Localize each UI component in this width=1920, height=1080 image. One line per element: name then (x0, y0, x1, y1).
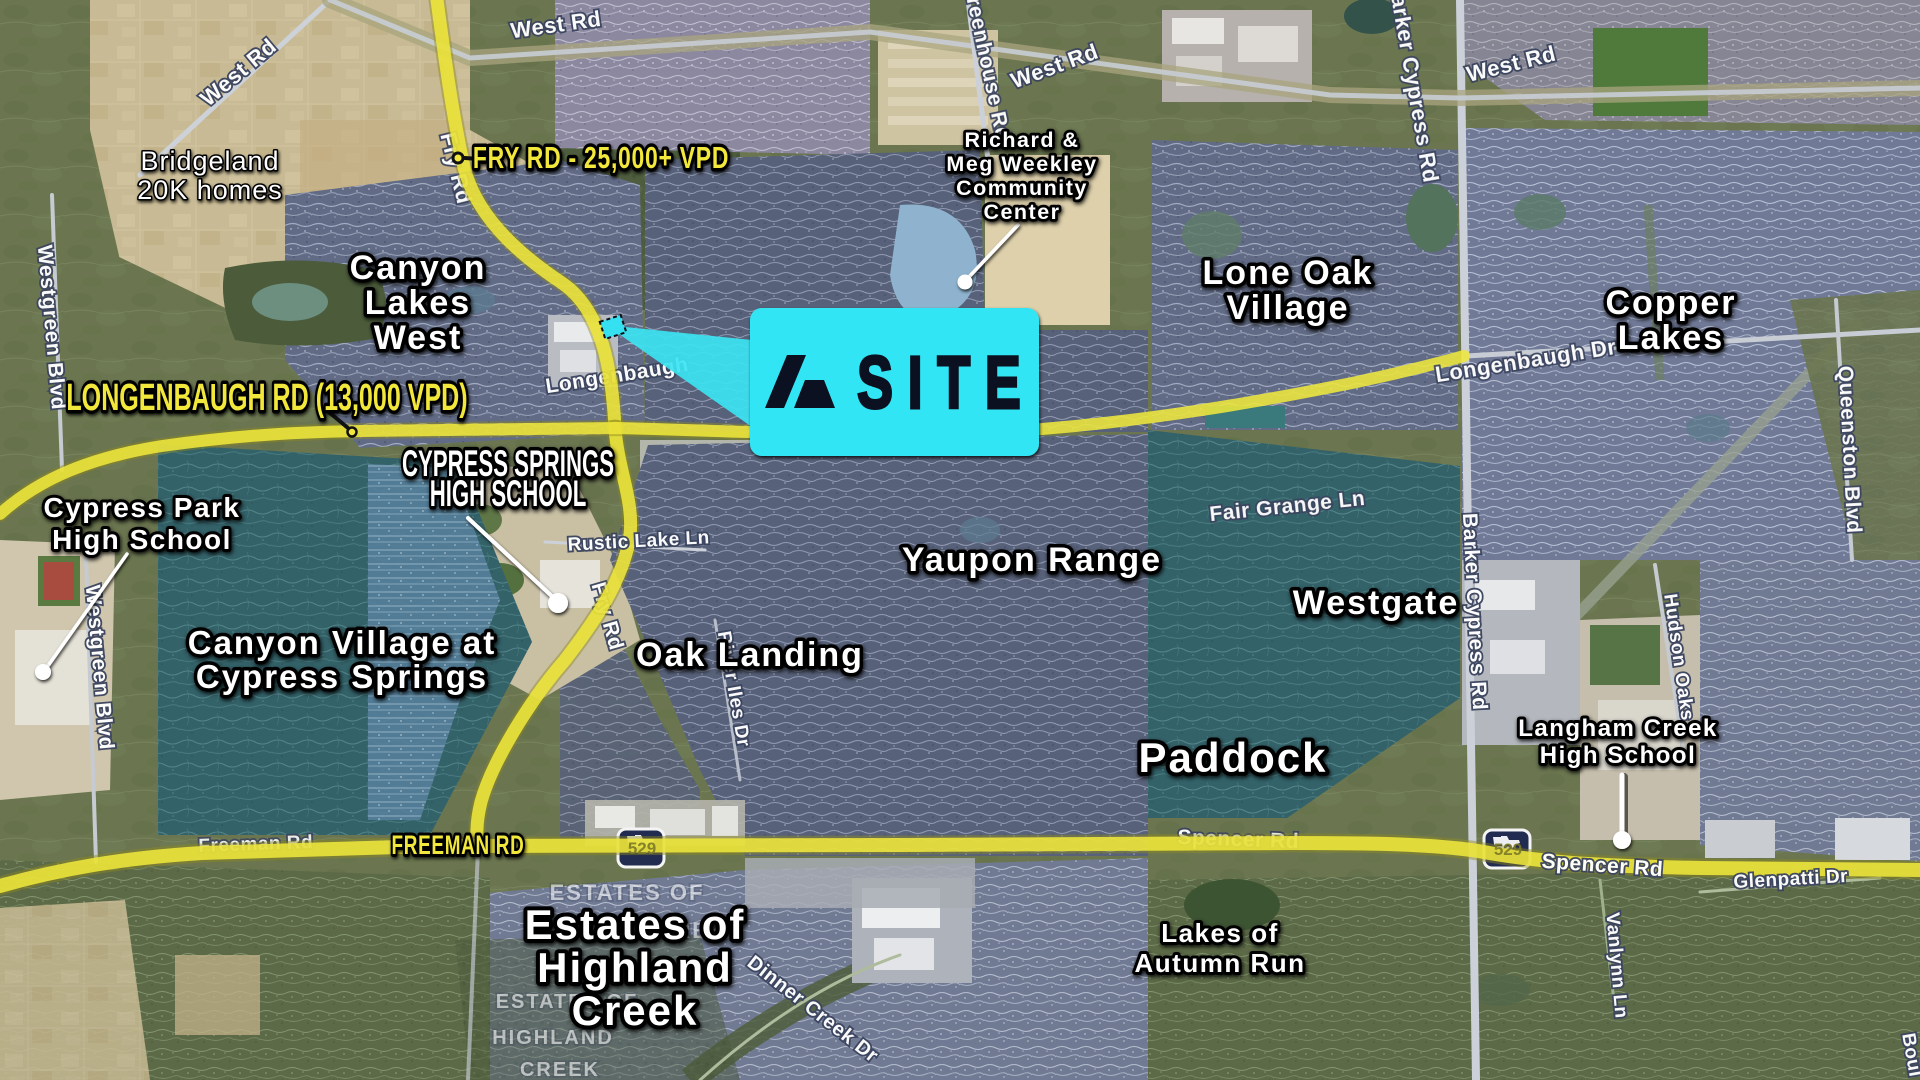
svg-text:Meg Weekley: Meg Weekley (946, 152, 1097, 176)
svg-text:LONGENBAUGH RD (13,000 VPD): LONGENBAUGH RD (13,000 VPD) (66, 376, 467, 418)
svg-text:Langham Creek: Langham Creek (1518, 715, 1718, 742)
svg-text:SITE: SITE (857, 341, 1035, 424)
svg-text:High School: High School (1540, 742, 1697, 769)
svg-text:Copper: Copper (1606, 284, 1737, 322)
svg-text:Lakes: Lakes (1618, 319, 1724, 357)
svg-text:High School: High School (52, 524, 232, 555)
svg-text:FRY RD - 25,000+ VPD: FRY RD - 25,000+ VPD (473, 140, 729, 175)
svg-text:20K homes: 20K homes (137, 175, 283, 205)
svg-text:529: 529 (1494, 840, 1522, 859)
svg-text:529: 529 (628, 839, 656, 858)
svg-text:West: West (374, 319, 463, 357)
svg-text:Highland: Highland (537, 944, 733, 991)
svg-text:FREEMAN RD: FREEMAN RD (392, 830, 525, 860)
svg-text:Westgate: Westgate (1293, 584, 1460, 622)
svg-text:Oak Landing: Oak Landing (636, 636, 864, 674)
svg-text:Lone Oak: Lone Oak (1203, 254, 1374, 292)
svg-text:Community: Community (956, 176, 1088, 200)
svg-text:CREEK: CREEK (520, 1059, 600, 1080)
svg-text:HIGH SCHOOL: HIGH SCHOOL (430, 473, 587, 514)
svg-text:Paddock: Paddock (1138, 734, 1327, 781)
svg-text:Center: Center (983, 200, 1060, 224)
svg-text:Autumn Run: Autumn Run (1135, 948, 1306, 978)
svg-text:Canyon: Canyon (350, 249, 487, 287)
svg-text:Estates of: Estates of (525, 901, 746, 948)
svg-text:Cypress Springs: Cypress Springs (196, 658, 488, 695)
svg-text:Lakes: Lakes (365, 284, 471, 322)
svg-text:Yaupon Range: Yaupon Range (902, 541, 1162, 579)
svg-text:Village: Village (1227, 289, 1350, 327)
svg-text:Creek: Creek (572, 987, 699, 1034)
svg-text:Richard &: Richard & (964, 128, 1079, 152)
svg-text:Cypress Park: Cypress Park (43, 492, 240, 523)
svg-text:Bridgeland: Bridgeland (140, 146, 279, 176)
svg-text:Canyon Village at: Canyon Village at (188, 624, 496, 661)
svg-text:Lakes of: Lakes of (1161, 918, 1279, 948)
